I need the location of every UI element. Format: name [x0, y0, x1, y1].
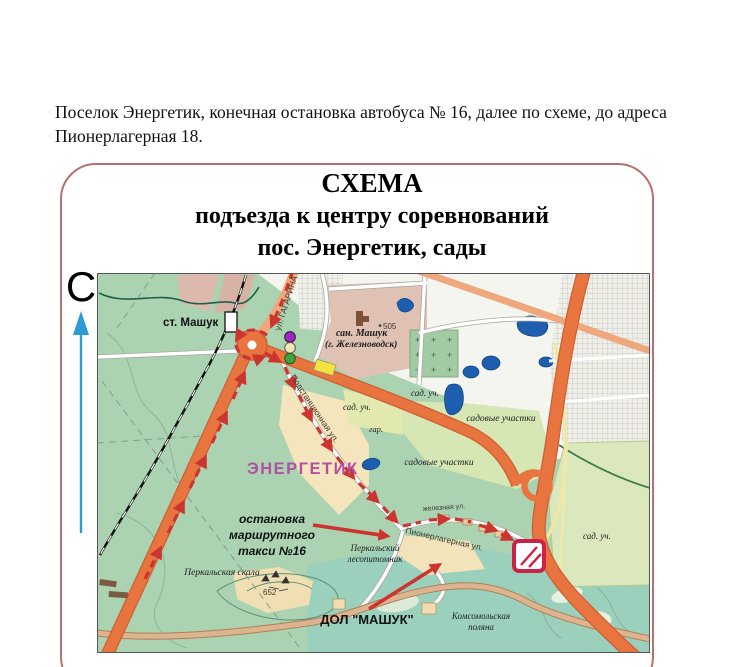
compass-north-letter: С — [64, 265, 98, 309]
destination-marker — [514, 541, 544, 571]
label-ostanovka-1: остановка — [239, 512, 305, 526]
scheme-title-line3: пос. Энергетик, сады — [92, 232, 652, 264]
label-sad-uch-2: сад. уч. — [343, 402, 371, 412]
label-perkalsky-1: Перкальский — [350, 543, 400, 553]
svg-text:+: + — [431, 350, 436, 360]
scheme-title-line2: подъезда к центру соревнований — [92, 200, 652, 232]
label-ostanovka-3: такси №16 — [238, 544, 306, 558]
label-san-mashuk-1: сан. Машук — [336, 328, 388, 339]
label-perkalskaya-skala: Перкальская скала — [183, 568, 260, 578]
svg-text:+: + — [431, 365, 436, 375]
svg-text:+: + — [447, 350, 452, 360]
label-komsomolskaya-2: поляна — [468, 622, 494, 632]
station-mashuk-symbol — [225, 312, 237, 332]
intro-paragraph: Поселок Энергетик, конечная остановка ав… — [55, 100, 740, 148]
map-svg: +++ +++ +++ — [97, 273, 650, 653]
label-dol-mashuk: ДОЛ "МАШУК" — [320, 612, 413, 627]
compass: С — [64, 265, 98, 539]
label-elevation-652: 652 — [263, 588, 277, 597]
svg-text:+: + — [431, 335, 436, 345]
label-komsomolskaya-1: Комсомольская — [451, 611, 510, 621]
label-elevation-505: 505 — [383, 322, 397, 331]
label-sad-uch-1: сад. уч. — [411, 388, 439, 398]
label-station-mashuk: ст. Машук — [163, 317, 219, 329]
svg-text:+: + — [447, 335, 452, 345]
label-perkalsky-2: лесопитомник — [347, 554, 404, 564]
intro-line-2: Пионерлагерная 18. — [55, 124, 740, 148]
scheme-title: СХЕМА подъезда к центру соревнований пос… — [62, 167, 652, 264]
map: +++ +++ +++ — [97, 273, 650, 653]
scheme-title-line1: СХЕМА — [92, 167, 652, 200]
bus-stop-dots — [285, 332, 296, 364]
intro-line-1: Поселок Энергетик, конечная остановка ав… — [55, 100, 740, 124]
label-ostanovka-2: маршрутного — [229, 528, 315, 542]
label-sadovye-uchastki-2: садовые участки — [404, 457, 473, 468]
label-gar: гар. — [369, 424, 383, 434]
scheme-box: СХЕМА подъезда к центру соревнований пос… — [60, 163, 654, 667]
label-sadovye-uchastki-1: садовые участки — [466, 413, 535, 424]
page: Поселок Энергетик, конечная остановка ав… — [0, 0, 751, 667]
svg-text:+: + — [447, 365, 452, 375]
north-arrow-icon — [64, 309, 98, 534]
label-sad-uch-3: сад. уч. — [583, 531, 611, 541]
label-san-mashuk-2: (г. Железноводск) — [325, 339, 397, 350]
label-energetik: ЭНЕРГЕТИК — [247, 460, 359, 478]
